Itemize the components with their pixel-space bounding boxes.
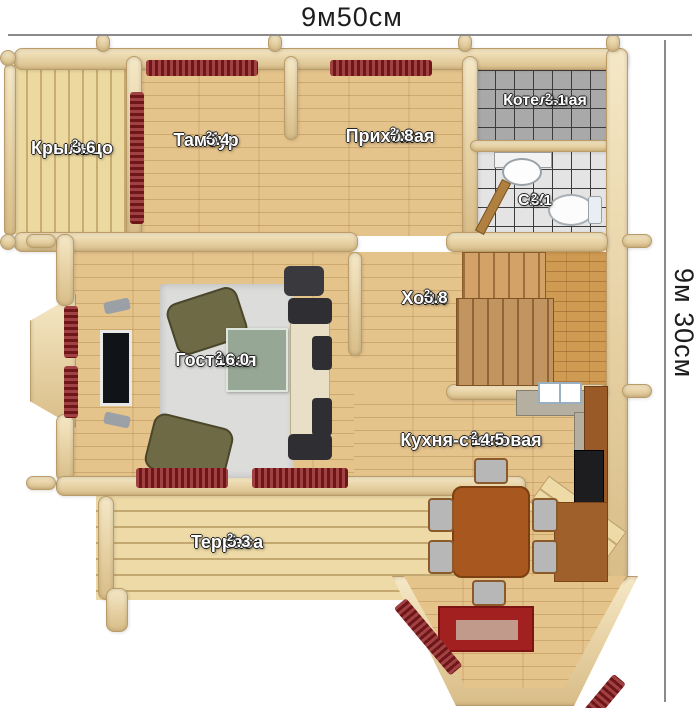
dimension-width-label: 9м50см bbox=[252, 2, 452, 33]
terrace-post-left bbox=[106, 588, 128, 632]
porch-railing bbox=[4, 64, 16, 236]
log-end-porch-bottom bbox=[0, 234, 16, 250]
log-end-left-mid bbox=[26, 234, 56, 248]
fireplace bbox=[284, 266, 324, 296]
floor-plan: 9м50см 9м 30см bbox=[0, 0, 699, 708]
curtain-terrace-window-2 bbox=[252, 468, 348, 488]
hallway-floor bbox=[290, 70, 466, 236]
sofa-cushion-2 bbox=[312, 398, 332, 436]
dining-chair-left-2 bbox=[428, 540, 454, 574]
staircase-lower-flight bbox=[456, 298, 554, 386]
log-end-right-lower bbox=[622, 384, 652, 398]
curtain-terrace-window-1 bbox=[136, 468, 228, 488]
log-end-left-lower bbox=[26, 476, 56, 490]
wall-vestibule-hallway bbox=[284, 56, 298, 140]
dining-chair-right-2 bbox=[532, 540, 558, 574]
log-end-top-1 bbox=[96, 34, 110, 52]
log-end-top-3 bbox=[458, 34, 472, 52]
hall-floor bbox=[354, 252, 464, 392]
log-end-top-4 bbox=[606, 34, 620, 52]
curtain-vestibule-top bbox=[146, 60, 258, 76]
curtain-living-bay-lower bbox=[64, 366, 78, 418]
kitchen-window bbox=[538, 382, 582, 404]
kitchen-bay-rug bbox=[438, 606, 534, 652]
window-mullion bbox=[559, 384, 561, 402]
wall-mid-right bbox=[446, 232, 608, 252]
dimension-width-line bbox=[8, 34, 692, 36]
log-end-top-2 bbox=[268, 34, 282, 52]
wall-left-exterior-lower bbox=[56, 414, 74, 482]
vestibule-floor bbox=[140, 70, 290, 236]
kitchen-low-cabinet bbox=[554, 502, 608, 582]
sofa-cushion-1 bbox=[312, 336, 332, 370]
dining-chair-left-1 bbox=[428, 498, 454, 532]
wall-top-exterior bbox=[14, 48, 628, 70]
curtain-hallway-top bbox=[330, 60, 432, 76]
toilet-tank bbox=[588, 196, 602, 224]
dimension-height-label: 9м 30см bbox=[668, 268, 699, 378]
wall-hall-living bbox=[348, 252, 362, 356]
dining-chair-bottom bbox=[472, 580, 506, 606]
dining-chair-top bbox=[474, 458, 508, 484]
wall-terrace-left bbox=[98, 496, 114, 600]
sofa-armrest-bottom bbox=[288, 434, 332, 460]
curtain-vestibule-left bbox=[130, 92, 144, 224]
log-end-right-mid bbox=[622, 234, 652, 248]
sofa-armrest-top bbox=[288, 298, 332, 324]
curtain-living-bay-upper bbox=[64, 306, 78, 358]
tv-screen bbox=[100, 330, 132, 406]
dining-chair-right-1 bbox=[532, 498, 558, 532]
rug-center-panel bbox=[456, 620, 518, 640]
dining-table bbox=[452, 486, 530, 578]
wall-left-exterior-upper bbox=[56, 234, 74, 306]
wall-right-exterior bbox=[606, 48, 628, 582]
log-end-porch-top bbox=[0, 50, 16, 66]
dimension-height-line bbox=[664, 40, 666, 702]
wall-boiler-bathroom bbox=[470, 140, 610, 152]
